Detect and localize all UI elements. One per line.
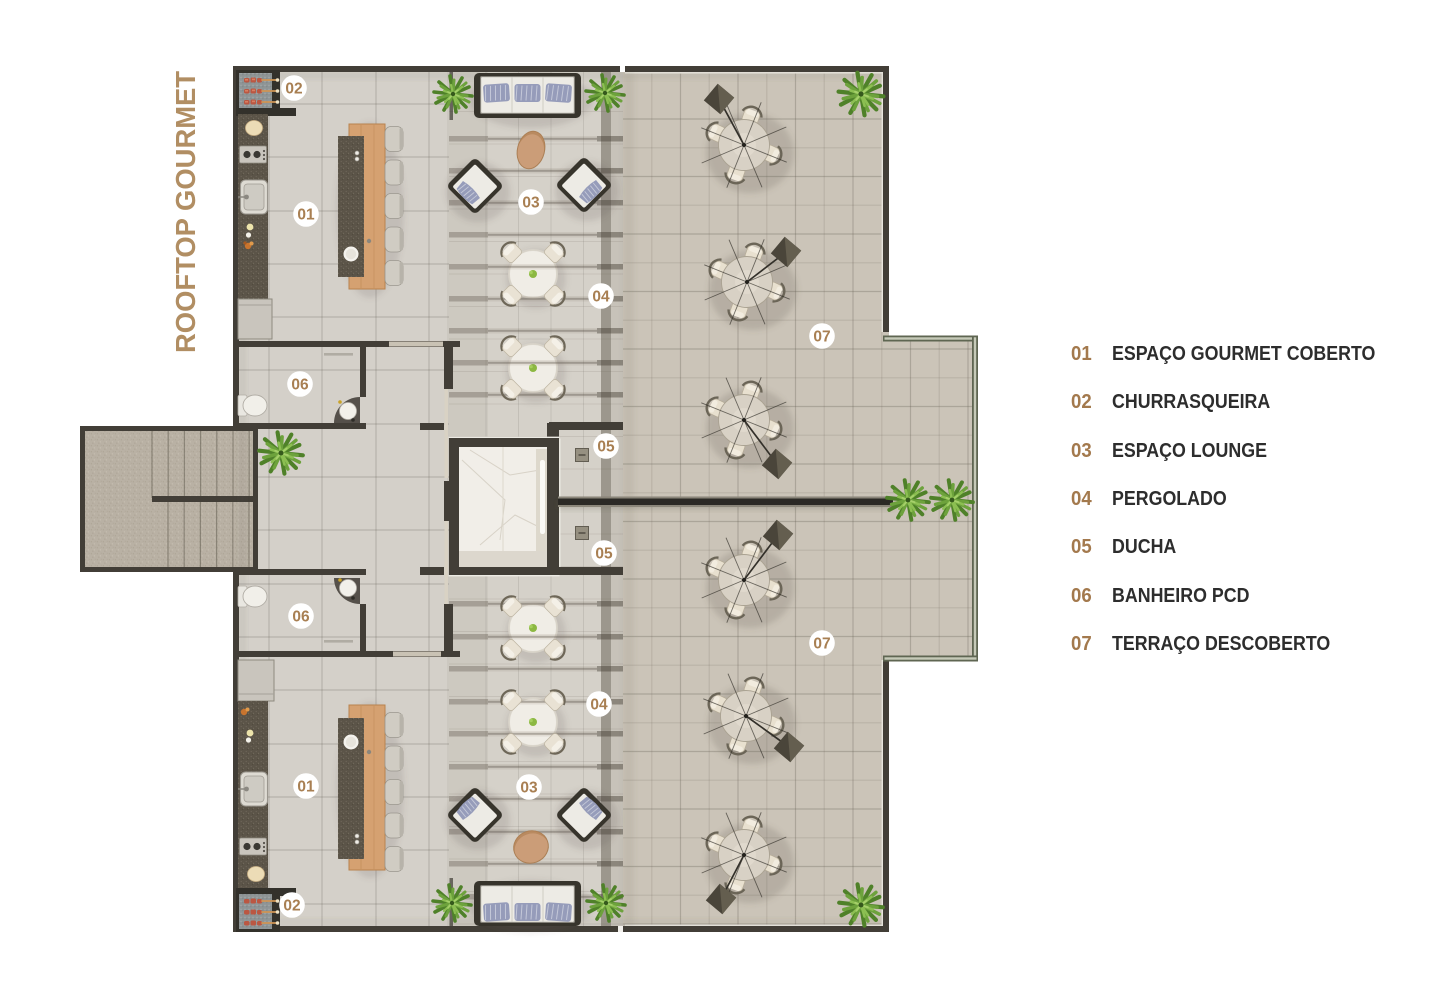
svg-text:07: 07 xyxy=(813,329,830,346)
svg-text:04: 04 xyxy=(590,697,608,714)
svg-text:02: 02 xyxy=(285,81,302,98)
svg-text:06: 06 xyxy=(292,609,310,626)
svg-text:06: 06 xyxy=(291,377,309,394)
svg-text:01: 01 xyxy=(297,207,315,224)
svg-text:04: 04 xyxy=(592,289,610,306)
svg-text:02: 02 xyxy=(283,898,300,915)
svg-text:05: 05 xyxy=(595,546,613,563)
svg-text:03: 03 xyxy=(522,195,540,212)
svg-text:05: 05 xyxy=(597,439,615,456)
svg-text:03: 03 xyxy=(520,780,538,797)
svg-text:01: 01 xyxy=(297,779,315,796)
svg-text:07: 07 xyxy=(813,636,830,653)
